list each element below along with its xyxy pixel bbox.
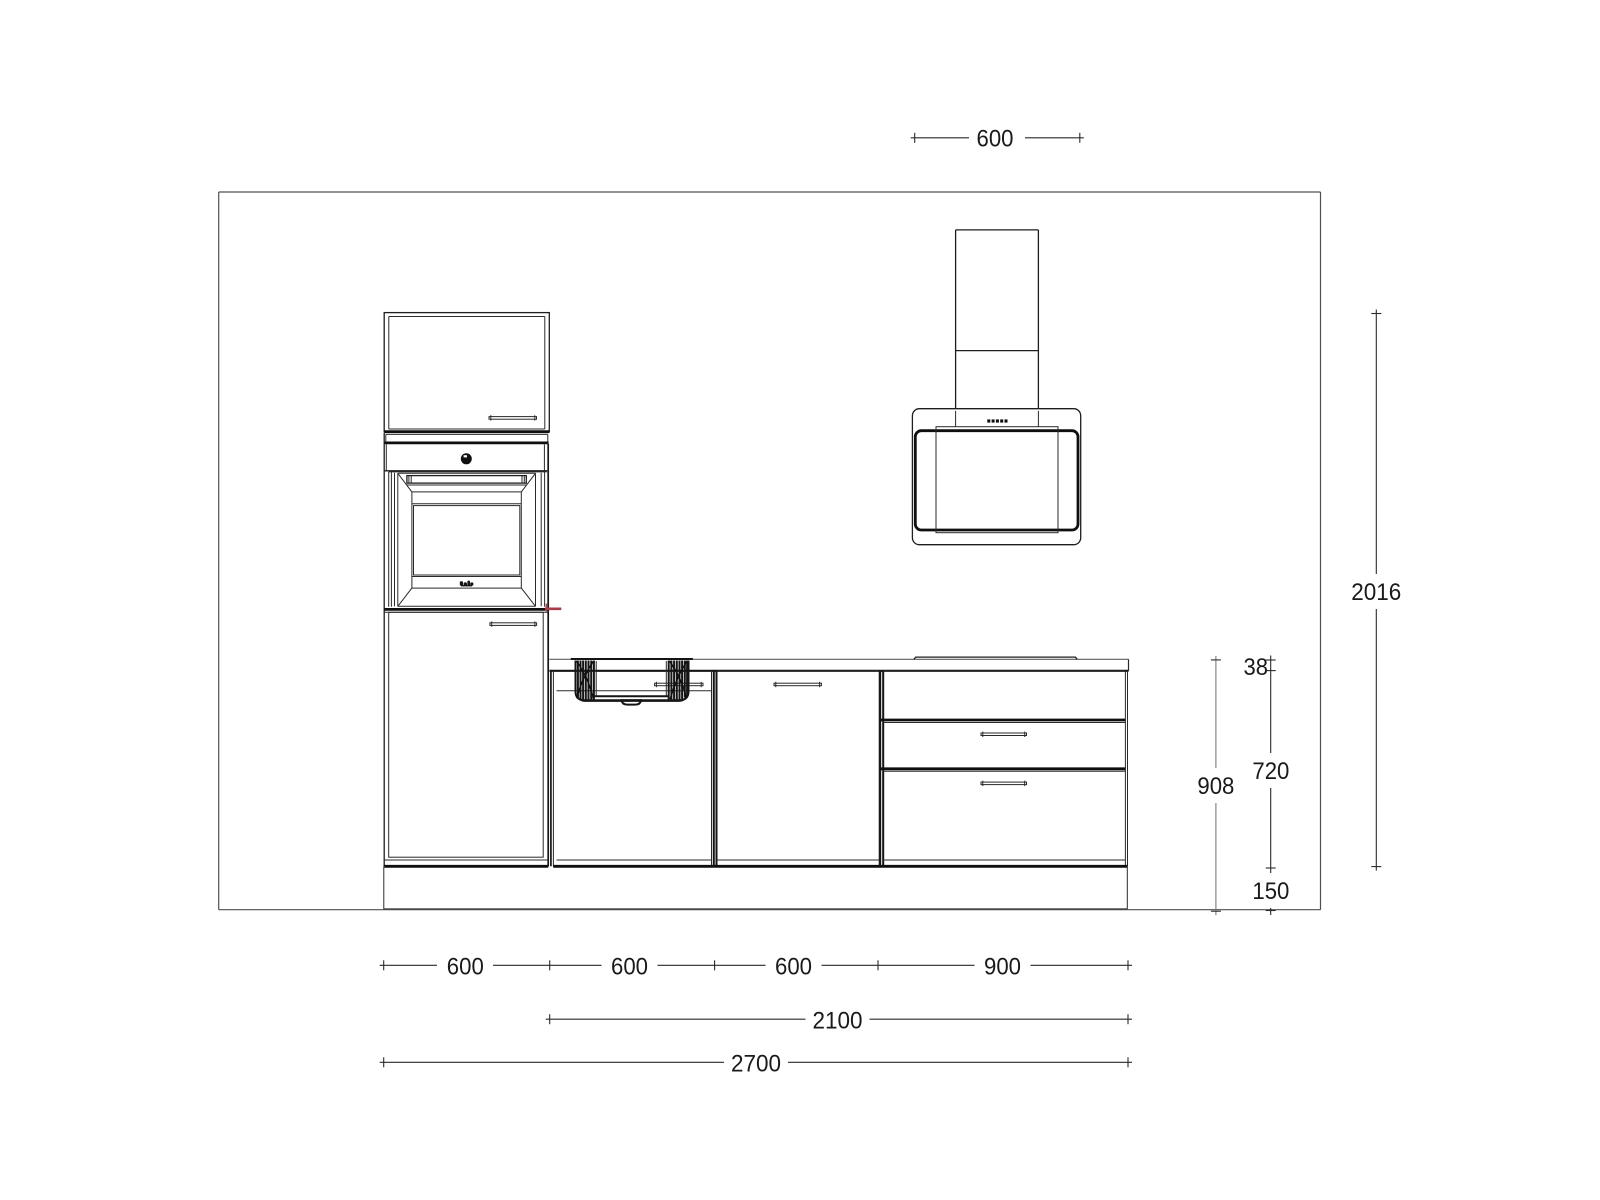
svg-text:38: 38 [1244, 654, 1269, 681]
svg-text:720: 720 [1252, 758, 1289, 785]
svg-text:900: 900 [984, 954, 1021, 981]
svg-text:600: 600 [775, 954, 812, 981]
svg-text:2700: 2700 [731, 1051, 781, 1078]
svg-text:150: 150 [1252, 878, 1289, 905]
svg-text:600: 600 [977, 126, 1014, 153]
svg-text:600: 600 [611, 954, 648, 981]
svg-text:2100: 2100 [813, 1007, 863, 1034]
svg-text:908: 908 [1197, 773, 1234, 800]
svg-text:600: 600 [447, 954, 484, 981]
svg-text:2016: 2016 [1351, 579, 1401, 606]
